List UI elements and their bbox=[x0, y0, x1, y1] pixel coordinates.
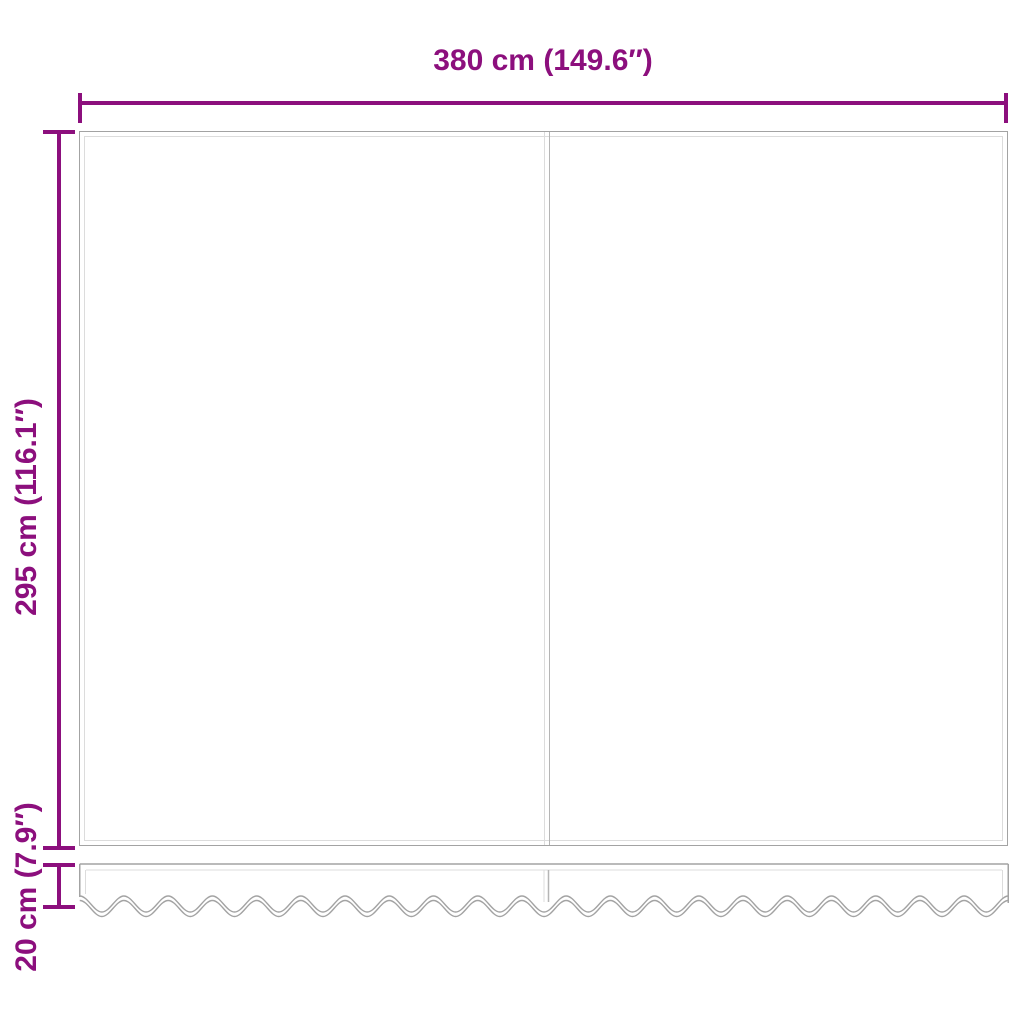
valance-height-dimension-tick-bottom bbox=[43, 905, 75, 909]
valance bbox=[79, 861, 1009, 921]
height-dimension-tick-top bbox=[43, 130, 75, 134]
awning-fabric-dimension-diagram: 380 cm (149.6″) 295 cm (116.1″) 20 cm (7… bbox=[0, 0, 1024, 1024]
height-dimension-tick-bottom bbox=[43, 846, 75, 850]
height-dimension-label: 295 cm (116.1″) bbox=[10, 398, 44, 616]
valance-scalloped-edge-inner bbox=[80, 901, 1009, 917]
width-dimension-label: 380 cm (149.6″) bbox=[80, 44, 1006, 78]
panel-center-seam bbox=[549, 132, 551, 845]
panel-center-seam-light bbox=[544, 132, 545, 845]
width-dimension-line bbox=[80, 101, 1006, 105]
width-dimension-tick-right bbox=[1004, 93, 1008, 123]
height-dimension-line bbox=[57, 131, 61, 850]
valance-height-dimension-line bbox=[57, 865, 61, 909]
valance-height-dimension-label: 20 cm (7.9″) bbox=[10, 802, 44, 971]
awning-fabric-panel bbox=[79, 131, 1008, 846]
valance-height-dimension-tick-top bbox=[43, 863, 75, 867]
width-dimension-tick-left bbox=[78, 93, 82, 123]
